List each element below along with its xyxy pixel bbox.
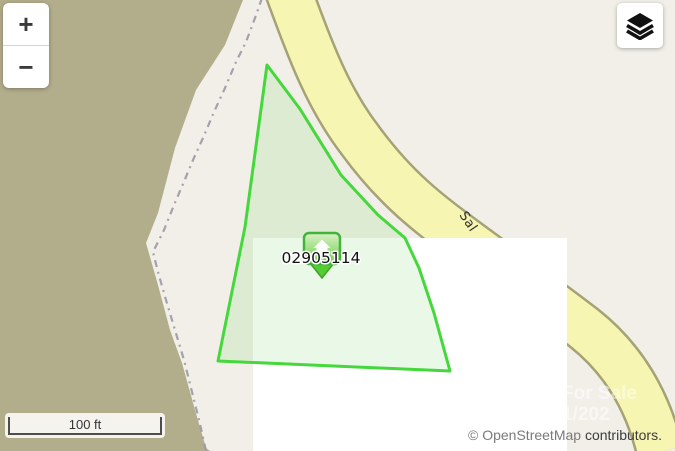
zoom-in-button[interactable]: + xyxy=(3,3,49,45)
scale-bar: 100 ft xyxy=(8,417,162,435)
osm-attribution-link[interactable]: © OpenStreetMap xyxy=(468,427,581,443)
layers-button[interactable] xyxy=(617,3,663,48)
map-canvas[interactable]: Sal 02905114 xyxy=(0,0,675,451)
zoom-control: + − xyxy=(3,3,49,88)
layers-icon xyxy=(626,12,654,40)
parcel-id-label: 02905114 xyxy=(282,249,361,267)
attribution: © OpenStreetMap contributors. xyxy=(468,427,662,443)
attribution-suffix: contributors. xyxy=(585,427,662,443)
map-viewport[interactable]: Sal 02905114 For Sale 1/202 + − 100 ft xyxy=(0,0,675,451)
scale-control: 100 ft xyxy=(5,413,165,438)
zoom-out-button[interactable]: − xyxy=(3,45,49,88)
